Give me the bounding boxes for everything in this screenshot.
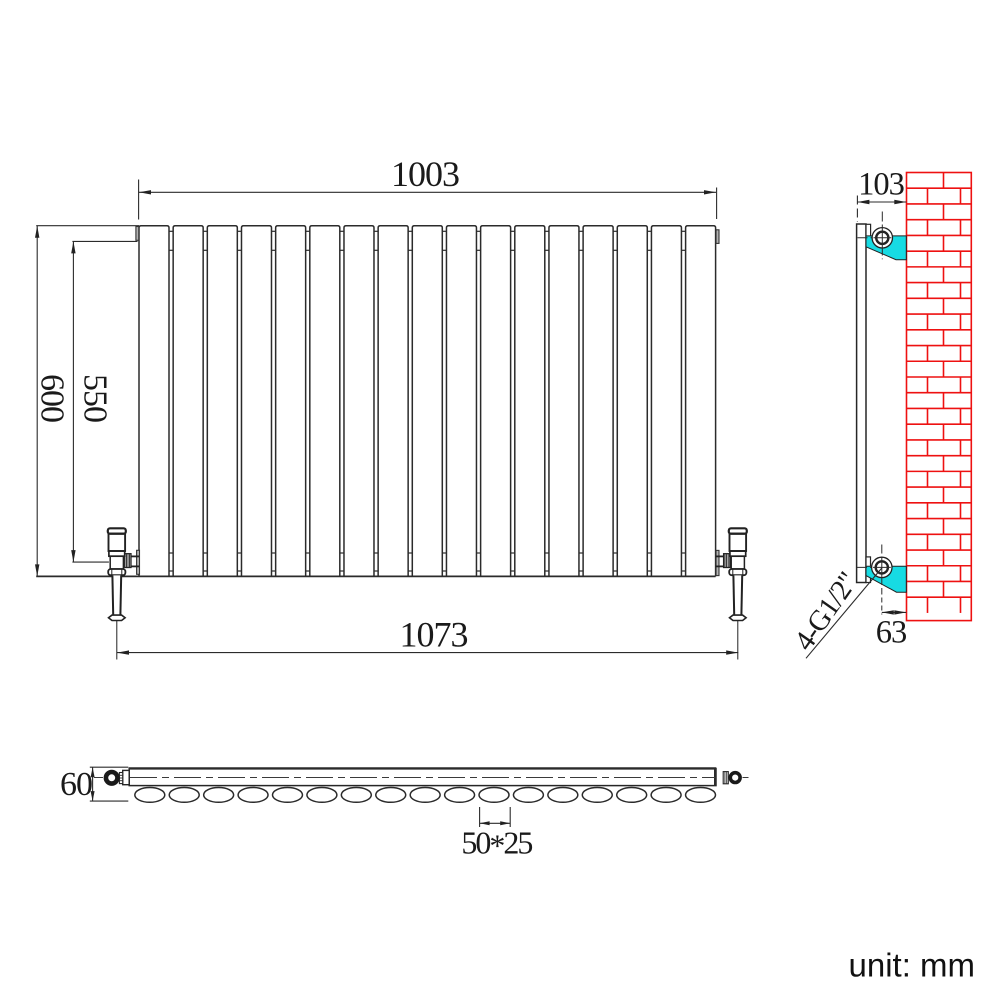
svg-text:63: 63	[876, 615, 907, 651]
svg-text:50*25: 50*25	[461, 825, 532, 864]
svg-text:1073: 1073	[400, 615, 468, 655]
svg-text:550: 550	[77, 374, 114, 422]
svg-text:1003: 1003	[391, 154, 459, 194]
svg-text:unit: mm: unit: mm	[849, 947, 976, 984]
svg-text:600: 600	[34, 374, 71, 422]
svg-text:60: 60	[60, 766, 92, 803]
svg-text:103: 103	[858, 167, 904, 203]
